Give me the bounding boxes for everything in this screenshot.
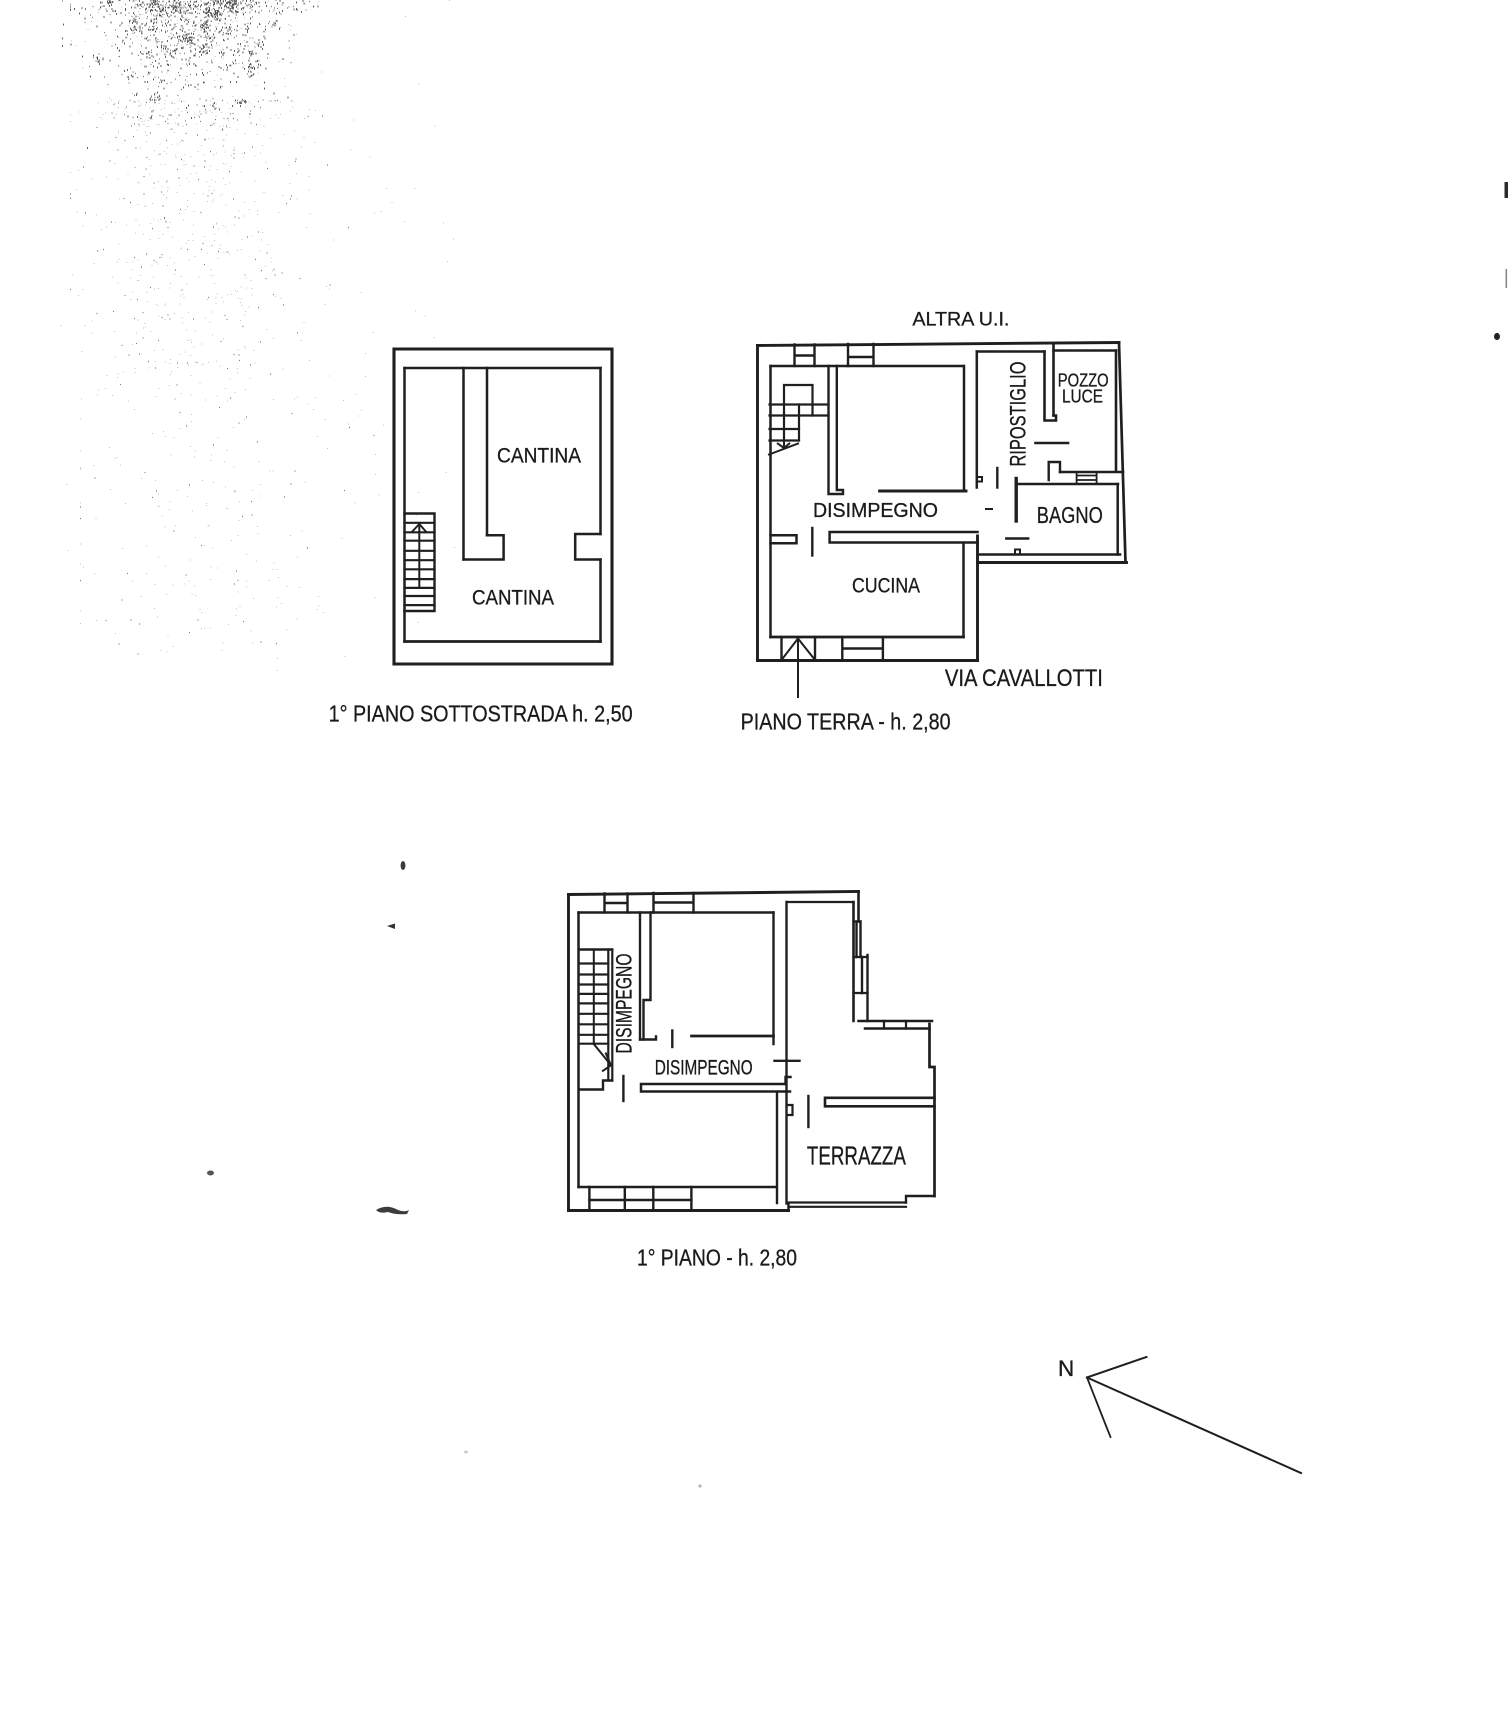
svg-text:VIA CAVALLOTTI: VIA CAVALLOTTI — [945, 665, 1103, 692]
svg-text:BAGNO: BAGNO — [1037, 502, 1103, 528]
svg-text:PIANO TERRA - h. 2,80: PIANO TERRA - h. 2,80 — [741, 709, 951, 735]
svg-text:CUCINA: CUCINA — [852, 574, 921, 598]
svg-text:DISIMPEGNO: DISIMPEGNO — [655, 1057, 753, 1080]
svg-text:ALTRA U.I.: ALTRA U.I. — [912, 309, 1009, 331]
svg-text:RIPOSTIGLIO: RIPOSTIGLIO — [1006, 362, 1031, 467]
svg-text:1° PIANO - h. 2,80: 1° PIANO - h. 2,80 — [637, 1245, 797, 1271]
svg-text:CANTINA: CANTINA — [497, 445, 581, 468]
svg-text:DISIMPEGNO: DISIMPEGNO — [813, 499, 938, 522]
svg-text:N: N — [1058, 1356, 1074, 1381]
svg-text:LUCE: LUCE — [1062, 387, 1103, 407]
svg-text:CANTINA: CANTINA — [472, 587, 554, 610]
svg-text:TERRAZZA: TERRAZZA — [807, 1141, 906, 1171]
svg-text:1° PIANO SOTTOSTRADA h. 2,50: 1° PIANO SOTTOSTRADA h. 2,50 — [329, 701, 633, 727]
svg-text:DISIMPEGNO: DISIMPEGNO — [612, 954, 637, 1054]
